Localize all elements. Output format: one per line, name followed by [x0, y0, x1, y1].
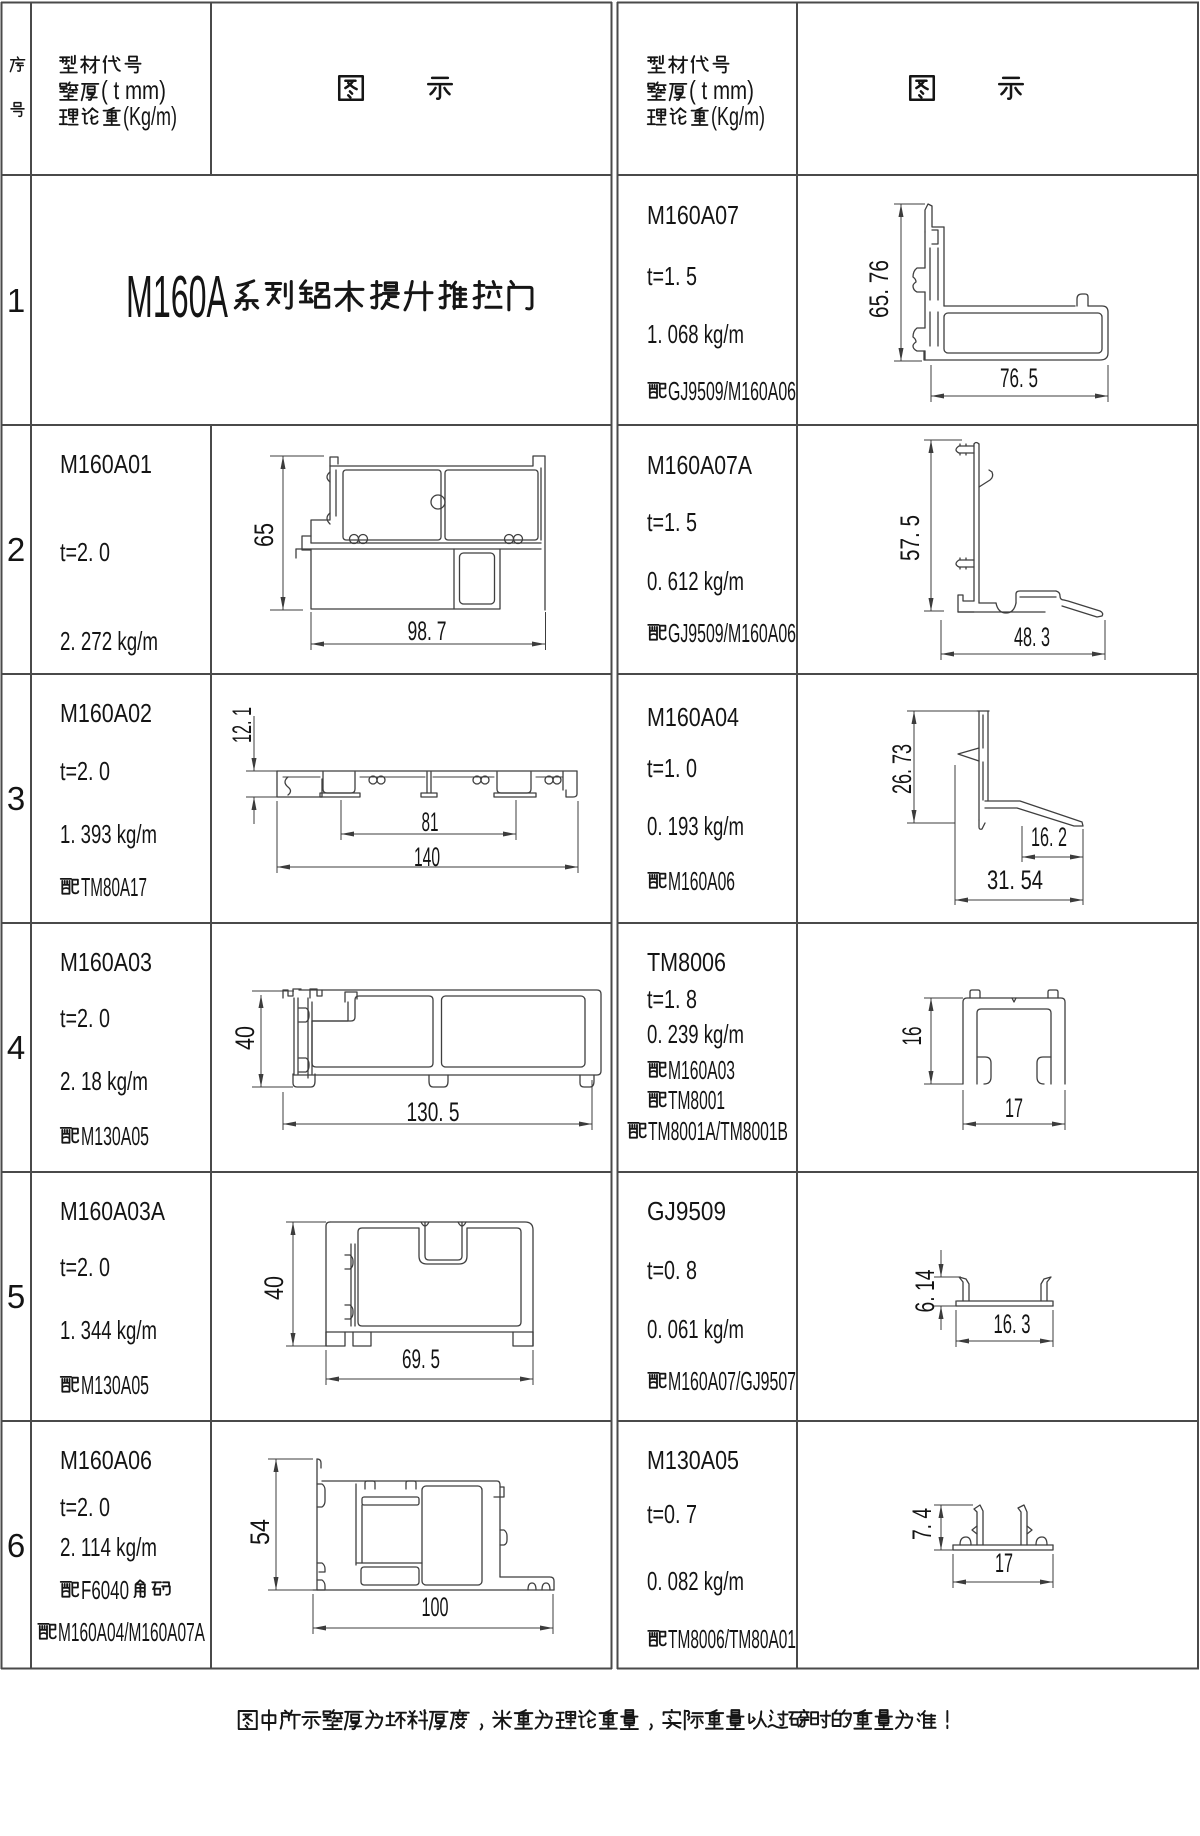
- svg-text:t=2. 0: t=2. 0: [60, 756, 110, 786]
- svg-text:26. 73: 26. 73: [887, 744, 917, 794]
- svg-text:t=1. 0: t=1. 0: [647, 753, 697, 783]
- svg-text:0. 612 kg/m: 0. 612 kg/m: [647, 566, 744, 596]
- svg-text:M160A02: M160A02: [60, 698, 152, 728]
- svg-text:M130A05: M130A05: [81, 1370, 149, 1400]
- svg-text:t=0. 7: t=0. 7: [647, 1499, 697, 1529]
- svg-text:M130A05: M130A05: [81, 1121, 149, 1151]
- svg-text:M160A04/M160A07A: M160A04/M160A07A: [58, 1617, 205, 1647]
- svg-text:81: 81: [422, 807, 439, 837]
- svg-text:48. 3: 48. 3: [1014, 622, 1050, 652]
- svg-text:GJ9509/M160A06: GJ9509/M160A06: [668, 376, 796, 406]
- svg-text:t=2. 0: t=2. 0: [60, 537, 110, 567]
- svg-text:40: 40: [230, 1026, 260, 1050]
- svg-text:69. 5: 69. 5: [402, 1344, 440, 1374]
- svg-text:TM8001A/TM8001B: TM8001A/TM8001B: [648, 1116, 788, 1146]
- svg-text:100: 100: [422, 1592, 449, 1622]
- svg-text:TM8006/TM80A01: TM8006/TM80A01: [668, 1624, 796, 1654]
- svg-text:M160A01: M160A01: [60, 449, 152, 479]
- svg-text:7. 4: 7. 4: [907, 1508, 937, 1540]
- svg-text:17: 17: [1005, 1093, 1023, 1123]
- svg-text:1. 344 kg/m: 1. 344 kg/m: [60, 1315, 157, 1345]
- svg-text:0. 193 kg/m: 0. 193 kg/m: [647, 811, 744, 841]
- svg-text:57. 5: 57. 5: [895, 515, 925, 561]
- svg-text:(Kg/m): (Kg/m): [123, 101, 177, 131]
- svg-text:t=1. 5: t=1. 5: [647, 507, 697, 537]
- svg-text:1. 393 kg/m: 1. 393 kg/m: [60, 819, 157, 849]
- svg-text:5: 5: [7, 1278, 25, 1315]
- svg-text:TM8006: TM8006: [647, 947, 726, 977]
- svg-text:0. 061 kg/m: 0. 061 kg/m: [647, 1314, 744, 1344]
- svg-text:6: 6: [7, 1527, 25, 1564]
- svg-text:M160A04: M160A04: [647, 702, 739, 732]
- svg-text:GJ9509/M160A06: GJ9509/M160A06: [668, 618, 796, 648]
- svg-text:M130A05: M130A05: [647, 1445, 739, 1475]
- svg-text:16. 3: 16. 3: [994, 1309, 1031, 1339]
- svg-text:4: 4: [7, 1029, 25, 1066]
- svg-text:(Kg/m): (Kg/m): [711, 101, 765, 131]
- svg-text:M160A06: M160A06: [60, 1445, 152, 1475]
- svg-text:t=0. 8: t=0. 8: [647, 1255, 697, 1285]
- svg-text:t=2. 0: t=2. 0: [60, 1252, 110, 1282]
- svg-text:2: 2: [7, 531, 25, 568]
- svg-text:M160A03: M160A03: [60, 947, 152, 977]
- svg-text:t=2. 0: t=2. 0: [60, 1003, 110, 1033]
- svg-text:M160A07/GJ9507: M160A07/GJ9507: [668, 1366, 796, 1396]
- svg-text:16. 2: 16. 2: [1031, 822, 1067, 852]
- svg-text:0. 082 kg/m: 0. 082 kg/m: [647, 1566, 744, 1596]
- svg-text:t=1. 8: t=1. 8: [647, 984, 697, 1014]
- svg-text:40: 40: [259, 1276, 289, 1300]
- svg-text:TM80A17: TM80A17: [81, 872, 147, 902]
- svg-text:130. 5: 130. 5: [407, 1097, 460, 1127]
- svg-text:2. 272 kg/m: 2. 272 kg/m: [60, 626, 158, 656]
- svg-text:76. 5: 76. 5: [1000, 363, 1038, 393]
- svg-text:GJ9509: GJ9509: [647, 1196, 726, 1226]
- svg-text:M160A03: M160A03: [668, 1055, 735, 1085]
- svg-text:16: 16: [897, 1027, 927, 1046]
- svg-text:M160A03A: M160A03A: [60, 1196, 166, 1226]
- svg-text:65. 76: 65. 76: [864, 260, 894, 318]
- svg-text:31. 54: 31. 54: [987, 865, 1043, 895]
- svg-text:0. 239 kg/m: 0. 239 kg/m: [647, 1019, 744, 1049]
- svg-text:t=2. 0: t=2. 0: [60, 1492, 110, 1522]
- svg-text:1. 068 kg/m: 1. 068 kg/m: [647, 319, 744, 349]
- svg-text:M160A07A: M160A07A: [647, 450, 753, 480]
- svg-text:2. 18 kg/m: 2. 18 kg/m: [60, 1066, 148, 1096]
- svg-text:M160A06: M160A06: [668, 866, 735, 896]
- svg-text:1: 1: [7, 282, 25, 319]
- svg-text:54: 54: [245, 1519, 275, 1545]
- svg-text:t=1. 5: t=1. 5: [647, 261, 697, 291]
- svg-text:F6040: F6040: [81, 1575, 129, 1605]
- svg-text:12. 1: 12. 1: [227, 707, 257, 743]
- svg-text:M160A07: M160A07: [647, 200, 739, 230]
- svg-text:M160A: M160A: [126, 264, 228, 330]
- svg-text:98. 7: 98. 7: [408, 616, 447, 646]
- svg-text:2. 114 kg/m: 2. 114 kg/m: [60, 1532, 157, 1562]
- svg-text:TM8001: TM8001: [668, 1085, 725, 1115]
- svg-text:3: 3: [7, 780, 25, 817]
- svg-text:65: 65: [249, 523, 279, 547]
- svg-text:17: 17: [995, 1548, 1013, 1578]
